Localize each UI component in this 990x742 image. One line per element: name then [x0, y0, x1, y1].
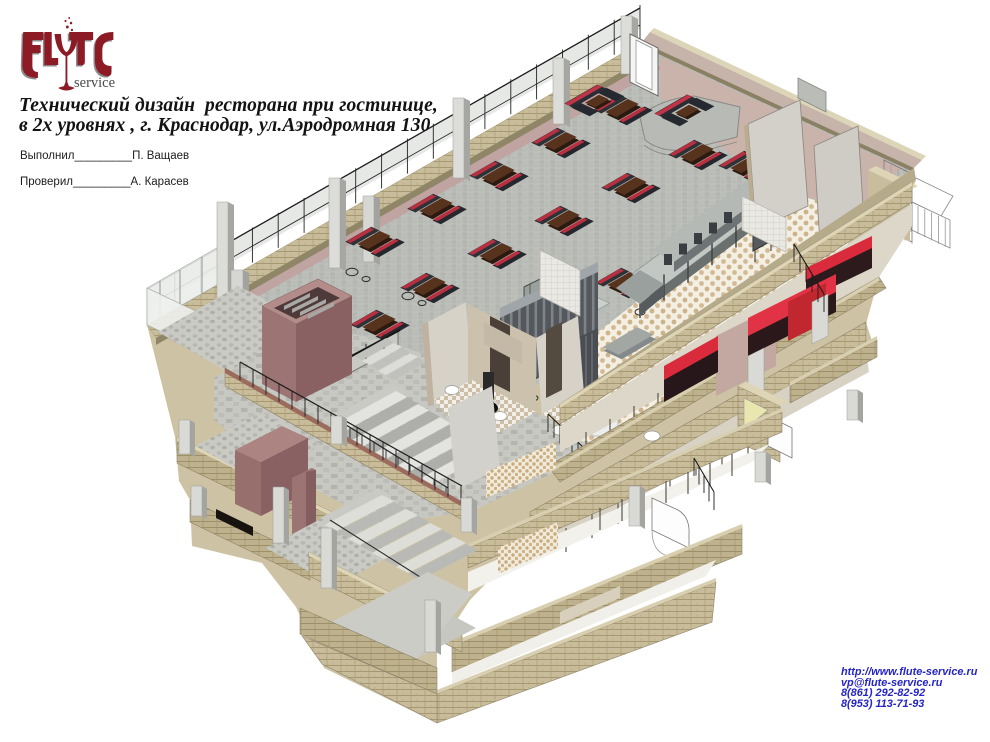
svg-text:service: service	[74, 75, 115, 91]
